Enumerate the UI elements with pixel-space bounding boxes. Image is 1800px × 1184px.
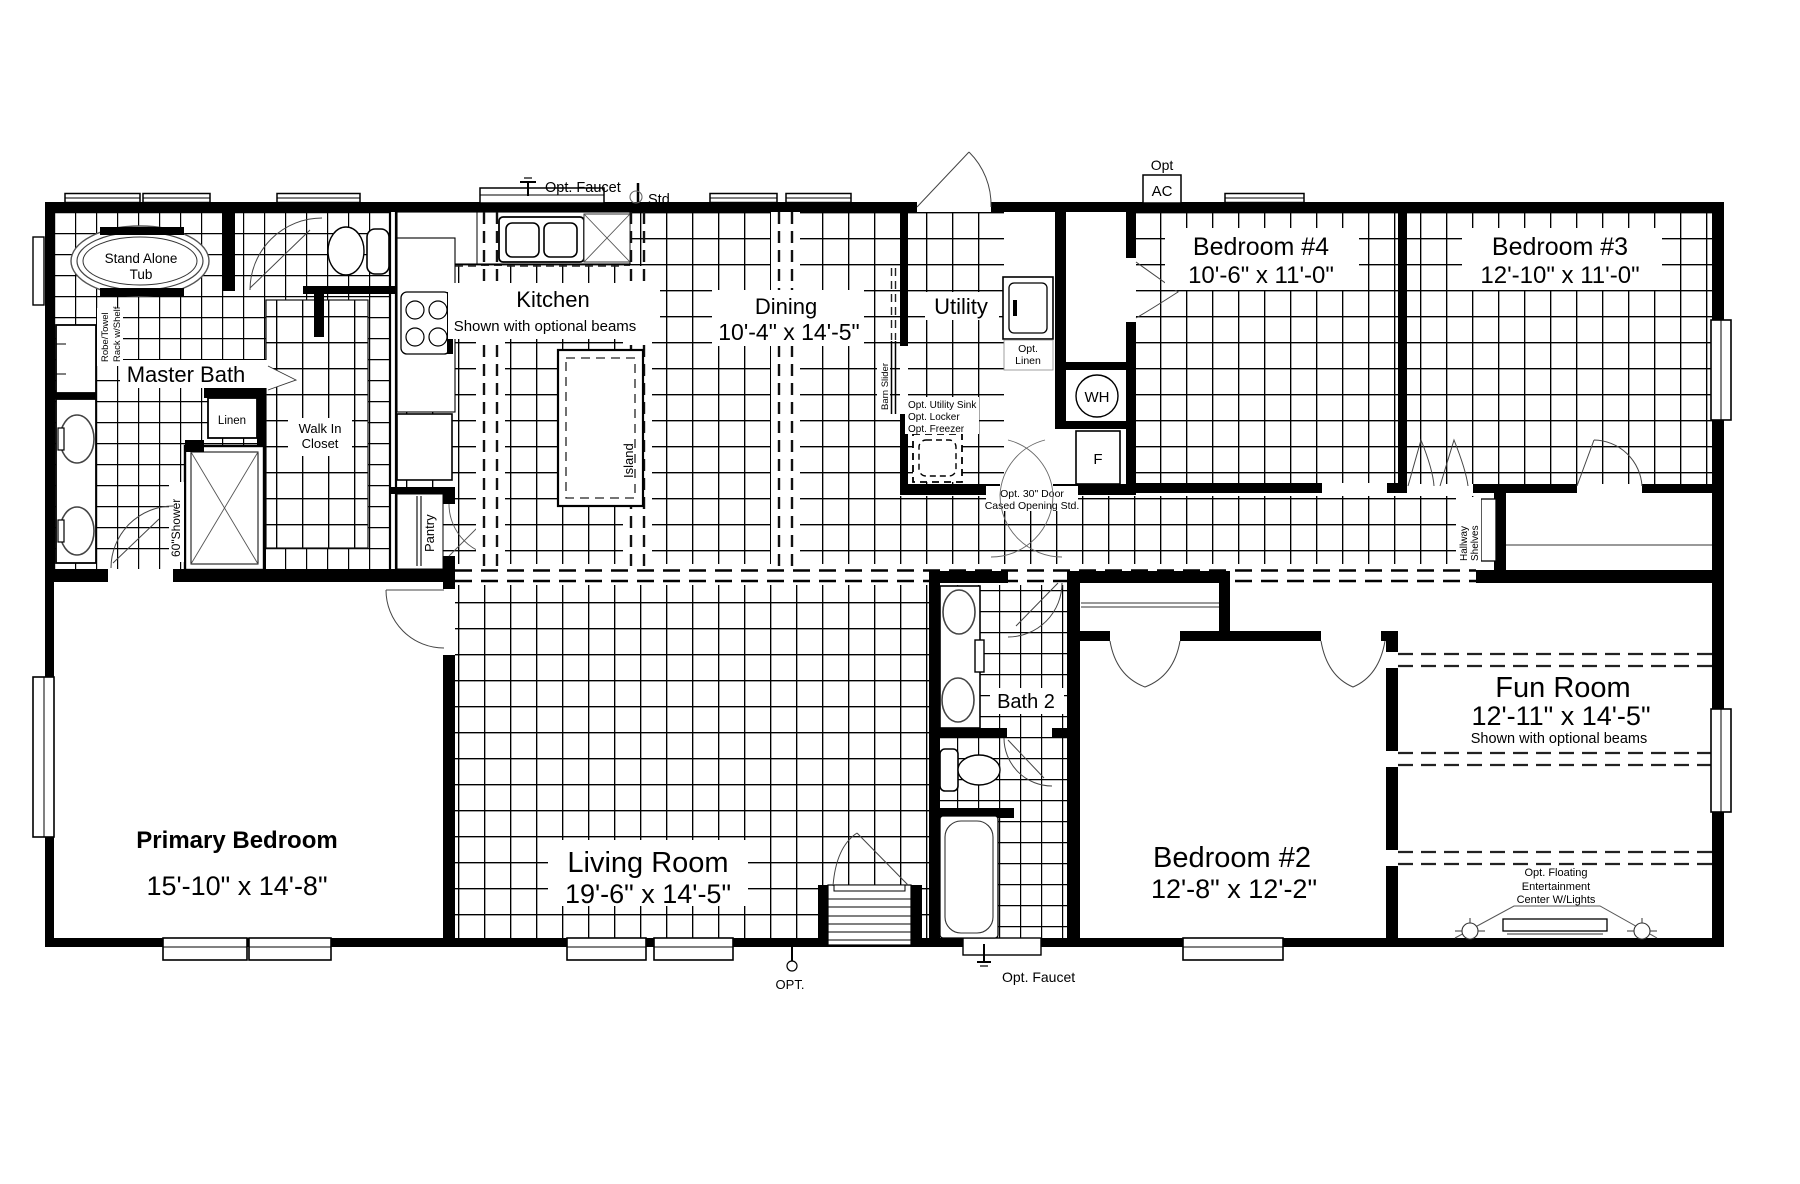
svg-text:Master Bath: Master Bath: [127, 362, 246, 387]
svg-text:12'-10" x 11'-0": 12'-10" x 11'-0": [1480, 262, 1639, 289]
svg-text:Opt. Freezer: Opt. Freezer: [908, 424, 965, 435]
svg-text:Utility: Utility: [934, 294, 988, 319]
svg-text:Shelves: Shelves: [1470, 525, 1481, 561]
svg-text:Rack w/Shelf: Rack w/Shelf: [112, 306, 123, 362]
svg-text:10'-6" x 11'-0": 10'-6" x 11'-0": [1188, 262, 1334, 289]
svg-text:Bedroom #2: Bedroom #2: [1153, 842, 1311, 874]
svg-text:Opt. Faucet: Opt. Faucet: [1002, 969, 1075, 985]
svg-text:Opt.: Opt.: [1018, 343, 1038, 355]
svg-text:Dining: Dining: [755, 294, 817, 319]
svg-text:Center W/Lights: Center W/Lights: [1517, 894, 1596, 906]
svg-text:Bedroom #4: Bedroom #4: [1193, 233, 1329, 261]
svg-text:Linen: Linen: [218, 415, 246, 427]
svg-text:12'-8" x 12'-2": 12'-8" x 12'-2": [1151, 874, 1317, 904]
svg-text:WH: WH: [1085, 389, 1110, 406]
svg-text:Std: Std: [648, 192, 670, 208]
svg-text:Closet: Closet: [302, 436, 339, 451]
svg-text:60"Shower: 60"Shower: [169, 499, 183, 557]
svg-text:Kitchen: Kitchen: [516, 287, 589, 312]
svg-text:Tub: Tub: [130, 267, 153, 282]
svg-text:12'-11" x 14'-5": 12'-11" x 14'-5": [1471, 701, 1650, 731]
svg-text:Opt: Opt: [1151, 157, 1174, 173]
svg-text:Opt. 30" Door: Opt. 30" Door: [1000, 488, 1064, 500]
svg-text:F: F: [1093, 451, 1102, 468]
svg-text:AC: AC: [1152, 183, 1173, 200]
svg-text:15'-10" x 14'-8": 15'-10" x 14'-8": [146, 871, 327, 901]
svg-text:Hallway: Hallway: [1459, 526, 1470, 561]
svg-text:Entertainment: Entertainment: [1522, 881, 1590, 893]
svg-text:Opt. Locker: Opt. Locker: [908, 412, 960, 423]
svg-text:Stand Alone: Stand Alone: [105, 251, 178, 266]
svg-text:Opt. Utility Sink: Opt. Utility Sink: [908, 400, 977, 411]
svg-text:Shown with optional beams: Shown with optional beams: [454, 318, 637, 335]
svg-text:Island: Island: [621, 443, 636, 478]
svg-text:Walk In: Walk In: [299, 421, 342, 436]
svg-text:Cased Opening Std.: Cased Opening Std.: [985, 500, 1080, 512]
svg-text:Bath 2: Bath 2: [997, 691, 1055, 713]
svg-text:Bedroom #3: Bedroom #3: [1492, 233, 1628, 261]
svg-text:Opt. Floating: Opt. Floating: [1525, 867, 1588, 879]
svg-text:Opt. Faucet: Opt. Faucet: [545, 180, 621, 196]
svg-text:Living Room: Living Room: [567, 847, 728, 879]
svg-text:Shown with optional beams: Shown with optional beams: [1471, 731, 1648, 747]
svg-text:Robe/Towel: Robe/Towel: [100, 312, 111, 362]
svg-text:Primary Bedroom: Primary Bedroom: [136, 827, 337, 854]
svg-text:Pantry: Pantry: [422, 514, 437, 552]
svg-text:Fun Room: Fun Room: [1495, 672, 1630, 704]
svg-text:Linen: Linen: [1015, 355, 1041, 367]
svg-text:10'-4" x 14'-5": 10'-4" x 14'-5": [718, 319, 859, 345]
svg-text:19'-6" x 14'-5": 19'-6" x 14'-5": [565, 879, 731, 909]
svg-text:OPT.: OPT.: [776, 977, 805, 992]
svg-text:Barn Slider: Barn Slider: [880, 363, 891, 410]
